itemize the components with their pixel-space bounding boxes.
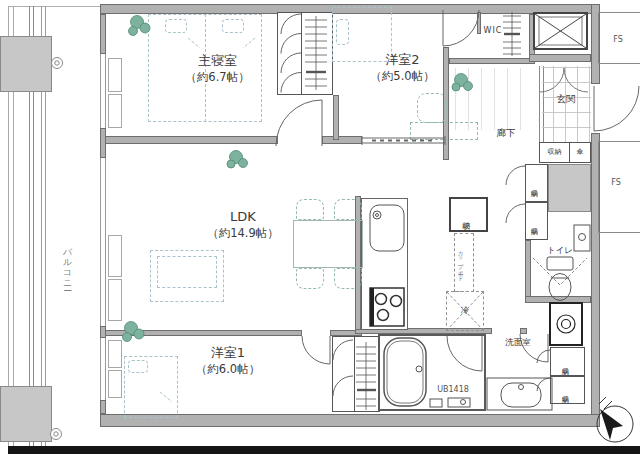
master-closet-hanger xyxy=(305,16,327,90)
room-label-western-room-2: 洋室2 （約5.0帖） xyxy=(330,52,475,84)
west1-closet-hanger xyxy=(356,342,376,410)
west1-closet-door-arcs xyxy=(333,340,353,396)
plant-icon xyxy=(227,151,248,169)
fs-label-top: FS xyxy=(598,35,638,45)
refrigerator-label: 冷 xyxy=(447,305,483,316)
bathtub xyxy=(384,338,470,407)
balcony-knob-bottom xyxy=(51,429,62,440)
washing-machine xyxy=(550,303,582,345)
western-room-2-size: （約5.0帖） xyxy=(330,69,475,84)
plant-icon xyxy=(123,322,145,342)
genkan-storage-label: 収納 xyxy=(540,148,569,157)
corridor-storage-label-2: 収納 xyxy=(529,207,538,237)
corridor-storage-label-1: 収納 xyxy=(529,169,538,199)
room-label-master-bedroom: 主寝室 （約6.7帖） xyxy=(140,53,295,85)
kitchen-stove xyxy=(370,288,404,326)
washroom-label: 洗面室 xyxy=(494,337,542,348)
unit-bath-label: UB1418 xyxy=(430,385,476,395)
plant-icon xyxy=(129,16,151,36)
entrance-label: 玄関 xyxy=(545,93,587,105)
floor-plan: バルコニー xyxy=(0,0,640,457)
washroom-storage-label-1: 収納 xyxy=(560,351,569,373)
sliding-door xyxy=(362,136,445,145)
plan-linework xyxy=(0,0,640,457)
master-bedroom-size: （約6.7帖） xyxy=(140,70,295,85)
balcony-knob-top xyxy=(52,58,63,69)
toilet-fixture xyxy=(547,257,573,301)
room-label-western-room-1: 洋室1 （約6.0帖） xyxy=(153,345,303,377)
west1-door-swing xyxy=(302,336,330,364)
bath-door-swing xyxy=(447,336,482,371)
western-room-1-name: 洋室1 xyxy=(153,345,303,362)
ldk-size: （約14.9帖） xyxy=(168,226,318,241)
front-door-swing xyxy=(594,86,639,131)
umbrella-storage-label: 傘 xyxy=(570,148,590,157)
vanity-sink xyxy=(487,378,552,410)
fs-label-bottom: FS xyxy=(596,178,636,188)
kitchen-storage-label: 収納 xyxy=(461,202,471,229)
hallway-label: 廊下 xyxy=(488,127,524,139)
washroom-storage-label-2: 収納 xyxy=(560,379,569,401)
toilet-door-dashed xyxy=(533,258,587,285)
western-room-1-size: （約6.0帖） xyxy=(153,362,303,377)
western-room-2-name: 洋室2 xyxy=(330,52,475,69)
master-door-swing xyxy=(276,100,322,146)
bottom-border-bar xyxy=(8,446,640,454)
master-bedroom-name: 主寝室 xyxy=(140,53,295,70)
ldk-name: LDK xyxy=(168,209,318,226)
shoe-cabinet-door-swings xyxy=(540,68,588,92)
kitchen-sink xyxy=(370,205,404,251)
wic-label: WIC xyxy=(478,26,508,36)
compass-icon xyxy=(597,397,633,442)
west2-door-swing xyxy=(443,10,479,46)
cupboard-label: カップボード xyxy=(457,236,464,290)
shaft-x-mark xyxy=(535,14,586,48)
toilet-label: トイレ xyxy=(538,245,582,256)
corridor-storage-door-arcs xyxy=(506,166,525,223)
room-label-ldk: LDK （約14.9帖） xyxy=(168,209,318,241)
